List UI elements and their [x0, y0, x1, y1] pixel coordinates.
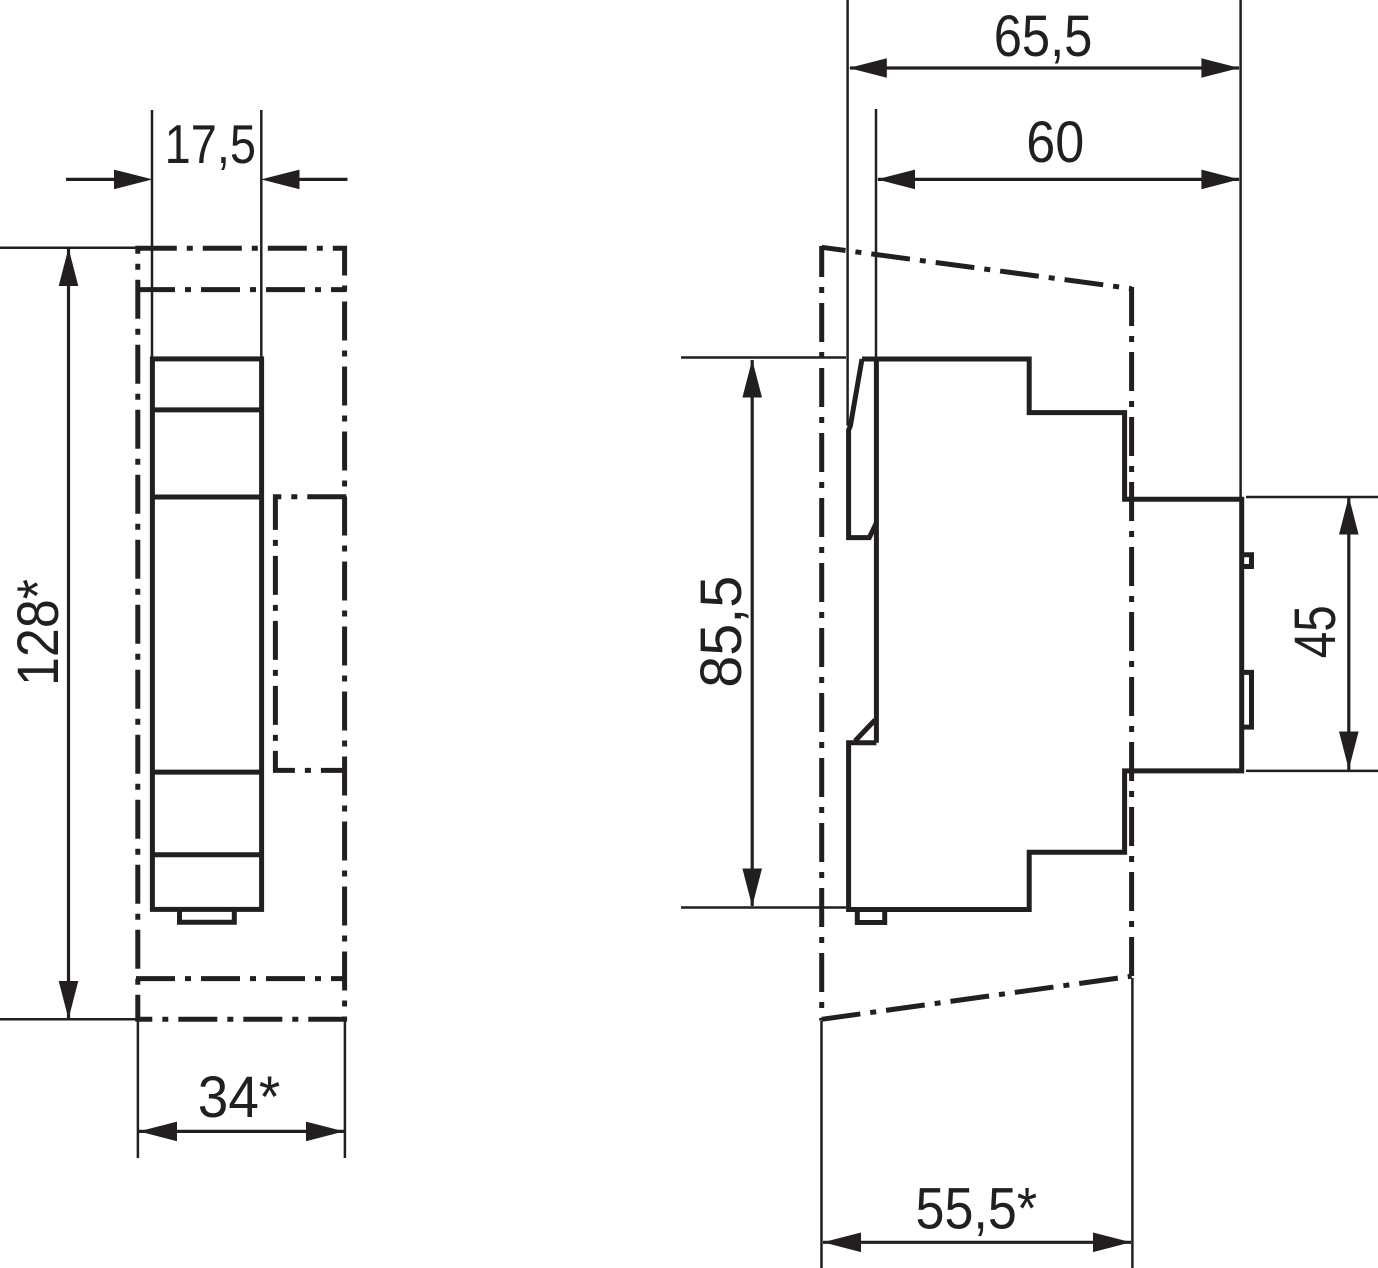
svg-text:65,5: 65,5 [994, 4, 1093, 69]
svg-text:34*: 34* [198, 1065, 280, 1130]
svg-text:85,5: 85,5 [689, 576, 754, 688]
svg-text:60: 60 [1026, 110, 1084, 175]
svg-text:128*: 128* [6, 579, 71, 686]
svg-text:45: 45 [1283, 605, 1348, 658]
svg-text:17,5: 17,5 [165, 113, 256, 175]
svg-text:55,5*: 55,5* [916, 1177, 1038, 1242]
